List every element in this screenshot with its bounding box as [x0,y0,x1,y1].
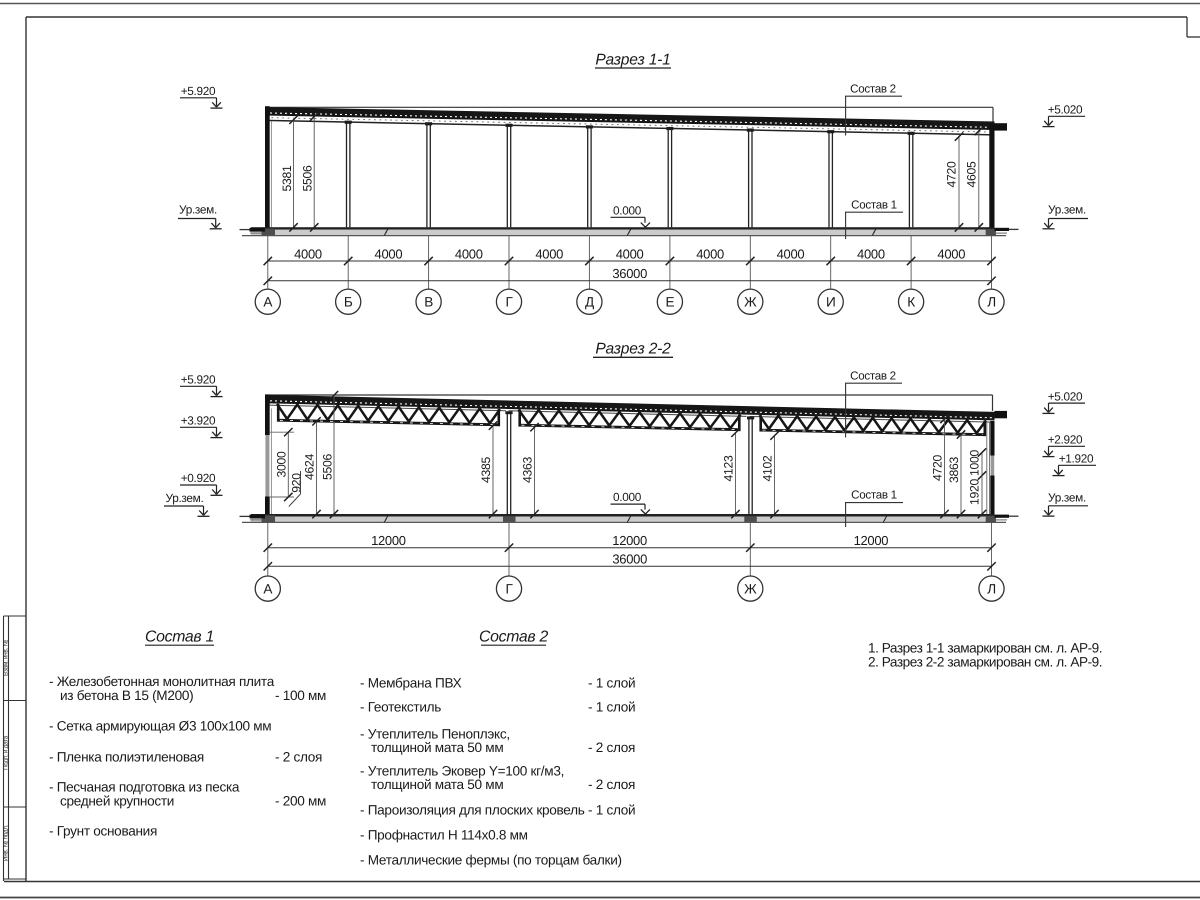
svg-text:- 2 слоя: - 2 слоя [588,740,635,755]
svg-text:12000: 12000 [854,533,889,548]
svg-text:4000: 4000 [777,246,805,261]
svg-text:Инв. № подл.: Инв. № подл. [2,824,9,861]
svg-text:- Металлические фермы (по торц: - Металлические фермы (по торцам балки) [360,852,622,867]
svg-text:2. Разрез 2-2 замаркирован см.: 2. Разрез 2-2 замаркирован см. л. АР-9. [868,655,1102,670]
svg-text:- Пароизоляция для плоских кро: - Пароизоляция для плоских кровель [360,802,585,817]
svg-text:- Геотекстиль: - Геотекстиль [360,700,441,715]
svg-text:0.000: 0.000 [613,490,642,504]
svg-text:5506: 5506 [301,165,315,191]
svg-text:4123: 4123 [722,455,736,481]
svg-text:4000: 4000 [937,246,965,261]
svg-text:Ур.зем.: Ур.зем. [179,203,217,217]
svg-text:0.000: 0.000 [613,203,642,217]
svg-text:+3.920: +3.920 [181,414,216,428]
svg-text:- 2 слоя: - 2 слоя [275,749,322,764]
svg-text:4385: 4385 [479,457,493,483]
svg-text:Е: Е [666,295,675,310]
svg-text:- 1 слой: - 1 слой [588,802,635,817]
svg-text:- Мембрана ПВХ: - Мембрана ПВХ [360,675,462,690]
svg-text:5506: 5506 [320,454,334,480]
svg-text:1000: 1000 [968,450,982,476]
svg-text:А: А [263,295,273,310]
svg-text:- Пленка полиэтиленовая: - Пленка полиэтиленовая [49,749,204,764]
svg-text:4000: 4000 [616,246,644,261]
svg-text:12000: 12000 [371,533,406,548]
svg-text:Ж: Ж [744,581,757,596]
svg-text:Ур.зем.: Ур.зем. [1048,203,1086,217]
svg-text:36000: 36000 [612,266,647,281]
svg-text:4720: 4720 [944,161,958,187]
svg-text:Взам. инв. №: Взам. инв. № [2,640,9,676]
svg-text:4000: 4000 [294,246,322,261]
svg-text:- 100 мм: - 100 мм [275,688,326,703]
svg-text:3000: 3000 [274,451,288,477]
svg-text:4000: 4000 [375,246,403,261]
svg-text:Разрез 1-1: Разрез 1-1 [595,52,670,69]
svg-text:4720: 4720 [930,455,944,481]
svg-text:- 1 слой: - 1 слой [588,700,635,715]
svg-text:Ж: Ж [744,295,757,310]
svg-text:5381: 5381 [280,165,294,191]
svg-text:толщиной мата 50 мм: толщиной мата 50 мм [371,740,503,755]
svg-text:+0.920: +0.920 [181,471,216,485]
svg-text:4102: 4102 [761,455,775,481]
svg-text:+5.920: +5.920 [181,84,216,98]
svg-text:- Грунт основания: - Грунт основания [49,824,157,839]
svg-text:Г: Г [505,581,513,596]
svg-text:А: А [263,581,273,596]
svg-text:- Песчаная подготовка из песка: - Песчаная подготовка из песка [49,779,240,794]
svg-text:4000: 4000 [857,246,885,261]
svg-text:Состав 1: Состав 1 [851,489,897,502]
svg-text:Б: Б [344,295,353,310]
svg-text:И: И [826,295,835,310]
svg-text:1. Разрез 1-1 замаркирован см.: 1. Разрез 1-1 замаркирован см. л. АР-9. [868,641,1102,656]
svg-text:Л: Л [987,581,996,596]
svg-text:+5.020: +5.020 [1048,103,1083,117]
svg-text:+2.920: +2.920 [1048,433,1083,447]
svg-text:1920: 1920 [968,479,982,505]
svg-text:- 200 мм: - 200 мм [275,793,326,808]
svg-text:Ур.зем.: Ур.зем. [166,491,204,505]
svg-text:Состав 1: Состав 1 [145,629,214,646]
svg-text:Состав 2: Состав 2 [479,629,548,646]
svg-text:Г: Г [505,295,513,310]
svg-text:толщиной мата 50 мм: толщиной мата 50 мм [371,777,503,792]
svg-text:В: В [424,295,433,310]
svg-text:36000: 36000 [612,551,647,566]
svg-text:Состав 1: Состав 1 [851,199,897,212]
svg-text:из бетона В 15 (М200): из бетона В 15 (М200) [60,688,193,703]
svg-text:4000: 4000 [696,246,724,261]
svg-text:средней крупности: средней крупности [60,793,174,808]
svg-text:Разрез 2-2: Разрез 2-2 [595,341,671,358]
svg-text:4605: 4605 [965,161,979,187]
svg-text:4000: 4000 [455,246,483,261]
svg-text:3863: 3863 [947,457,961,483]
svg-text:Подп. и дата: Подп. и дата [2,735,9,770]
svg-text:Состав 2: Состав 2 [850,369,896,382]
svg-text:+5.020: +5.020 [1048,389,1083,403]
svg-text:- 1 слой: - 1 слой [588,675,635,690]
svg-text:4624: 4624 [303,454,317,480]
svg-text:Ур.зем.: Ур.зем. [1048,491,1086,505]
svg-text:К: К [907,295,915,310]
svg-text:4363: 4363 [521,457,535,483]
svg-text:4000: 4000 [535,246,563,261]
svg-text:Состав 2: Состав 2 [850,82,896,95]
svg-text:+5.920: +5.920 [181,373,216,387]
svg-text:- Железобетонная монолитная п: - Железобетонная монолитная плита [49,674,275,689]
svg-text:- Сетка армирующая Ø3 100х100: - Сетка армирующая Ø3 100х100 мм [49,719,271,734]
svg-text:Л: Л [987,295,996,310]
svg-text:- 2 слоя: - 2 слоя [588,777,635,792]
svg-text:920: 920 [290,473,304,493]
svg-text:12000: 12000 [612,533,647,548]
svg-text:+1.920: +1.920 [1059,452,1094,466]
svg-text:Д: Д [585,295,594,310]
svg-text:- Профнастил Н 114х0.8 мм: - Профнастил Н 114х0.8 мм [360,827,528,842]
